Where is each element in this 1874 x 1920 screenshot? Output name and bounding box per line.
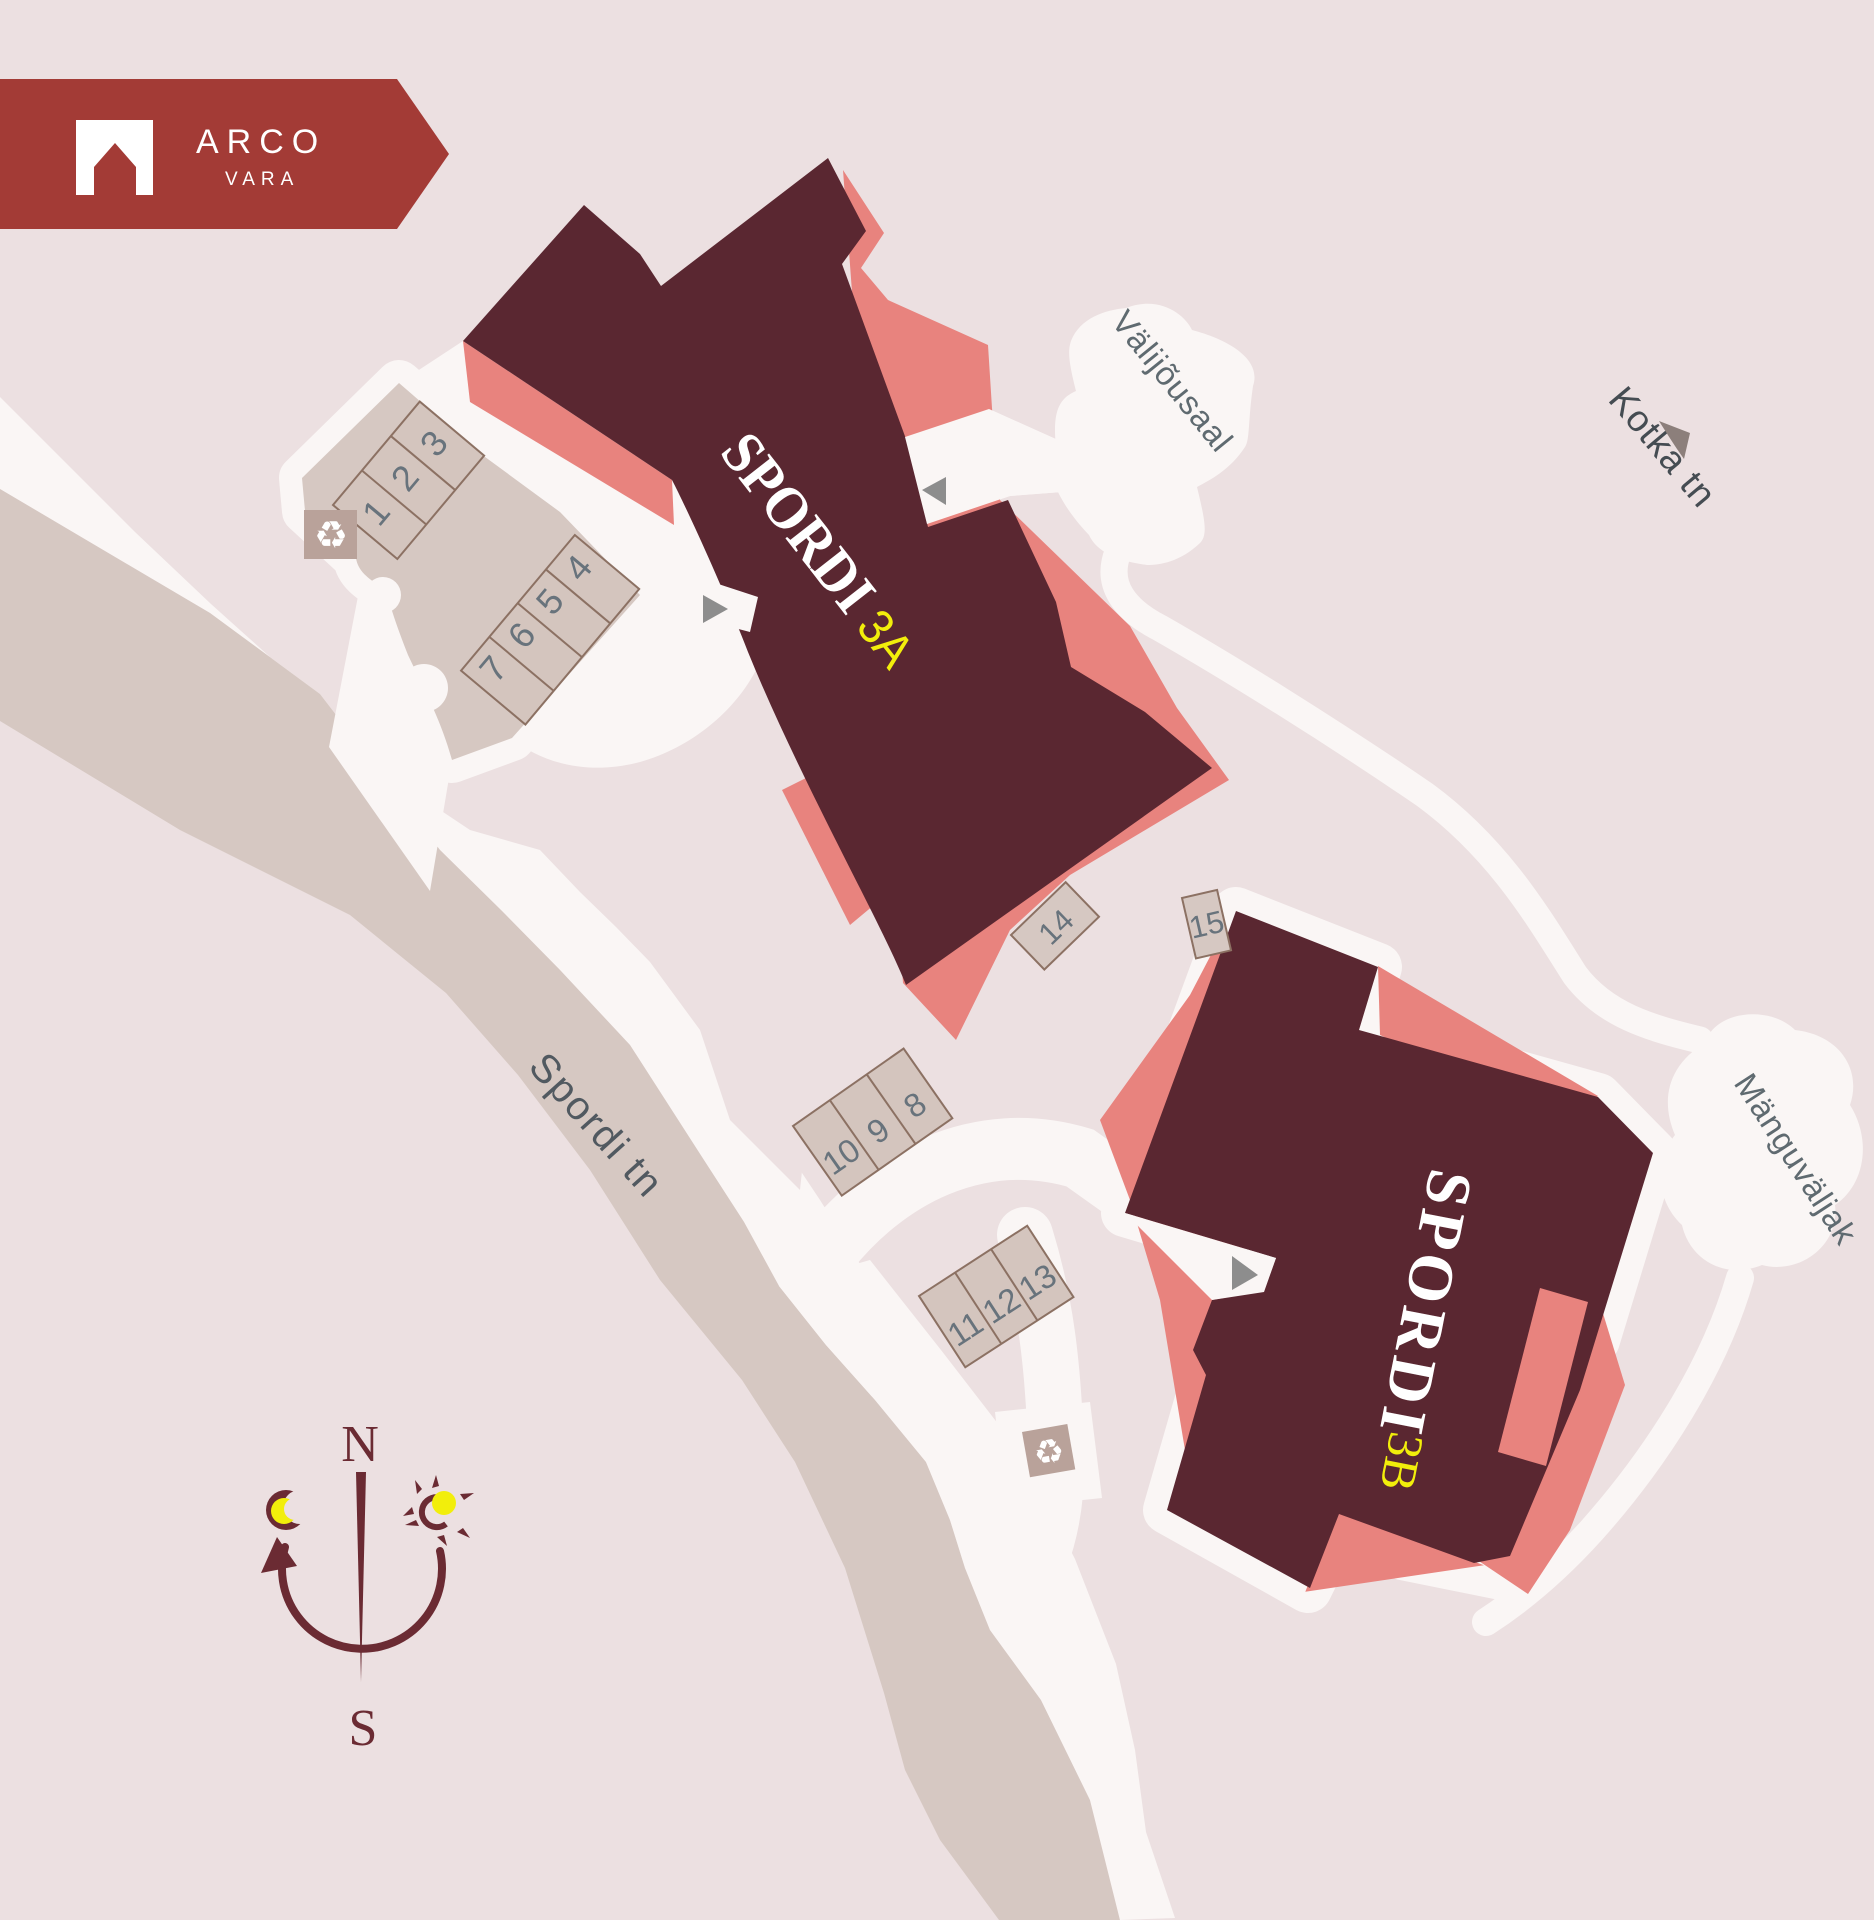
- svg-text:♻: ♻: [1031, 1431, 1068, 1474]
- svg-text:♻: ♻: [314, 515, 348, 557]
- svg-text:N: N: [341, 1416, 379, 1473]
- svg-text:S: S: [349, 1700, 378, 1757]
- svg-text:VARA: VARA: [225, 169, 299, 190]
- svg-text:3B: 3B: [1369, 1428, 1435, 1496]
- svg-text:ARCO: ARCO: [196, 123, 326, 161]
